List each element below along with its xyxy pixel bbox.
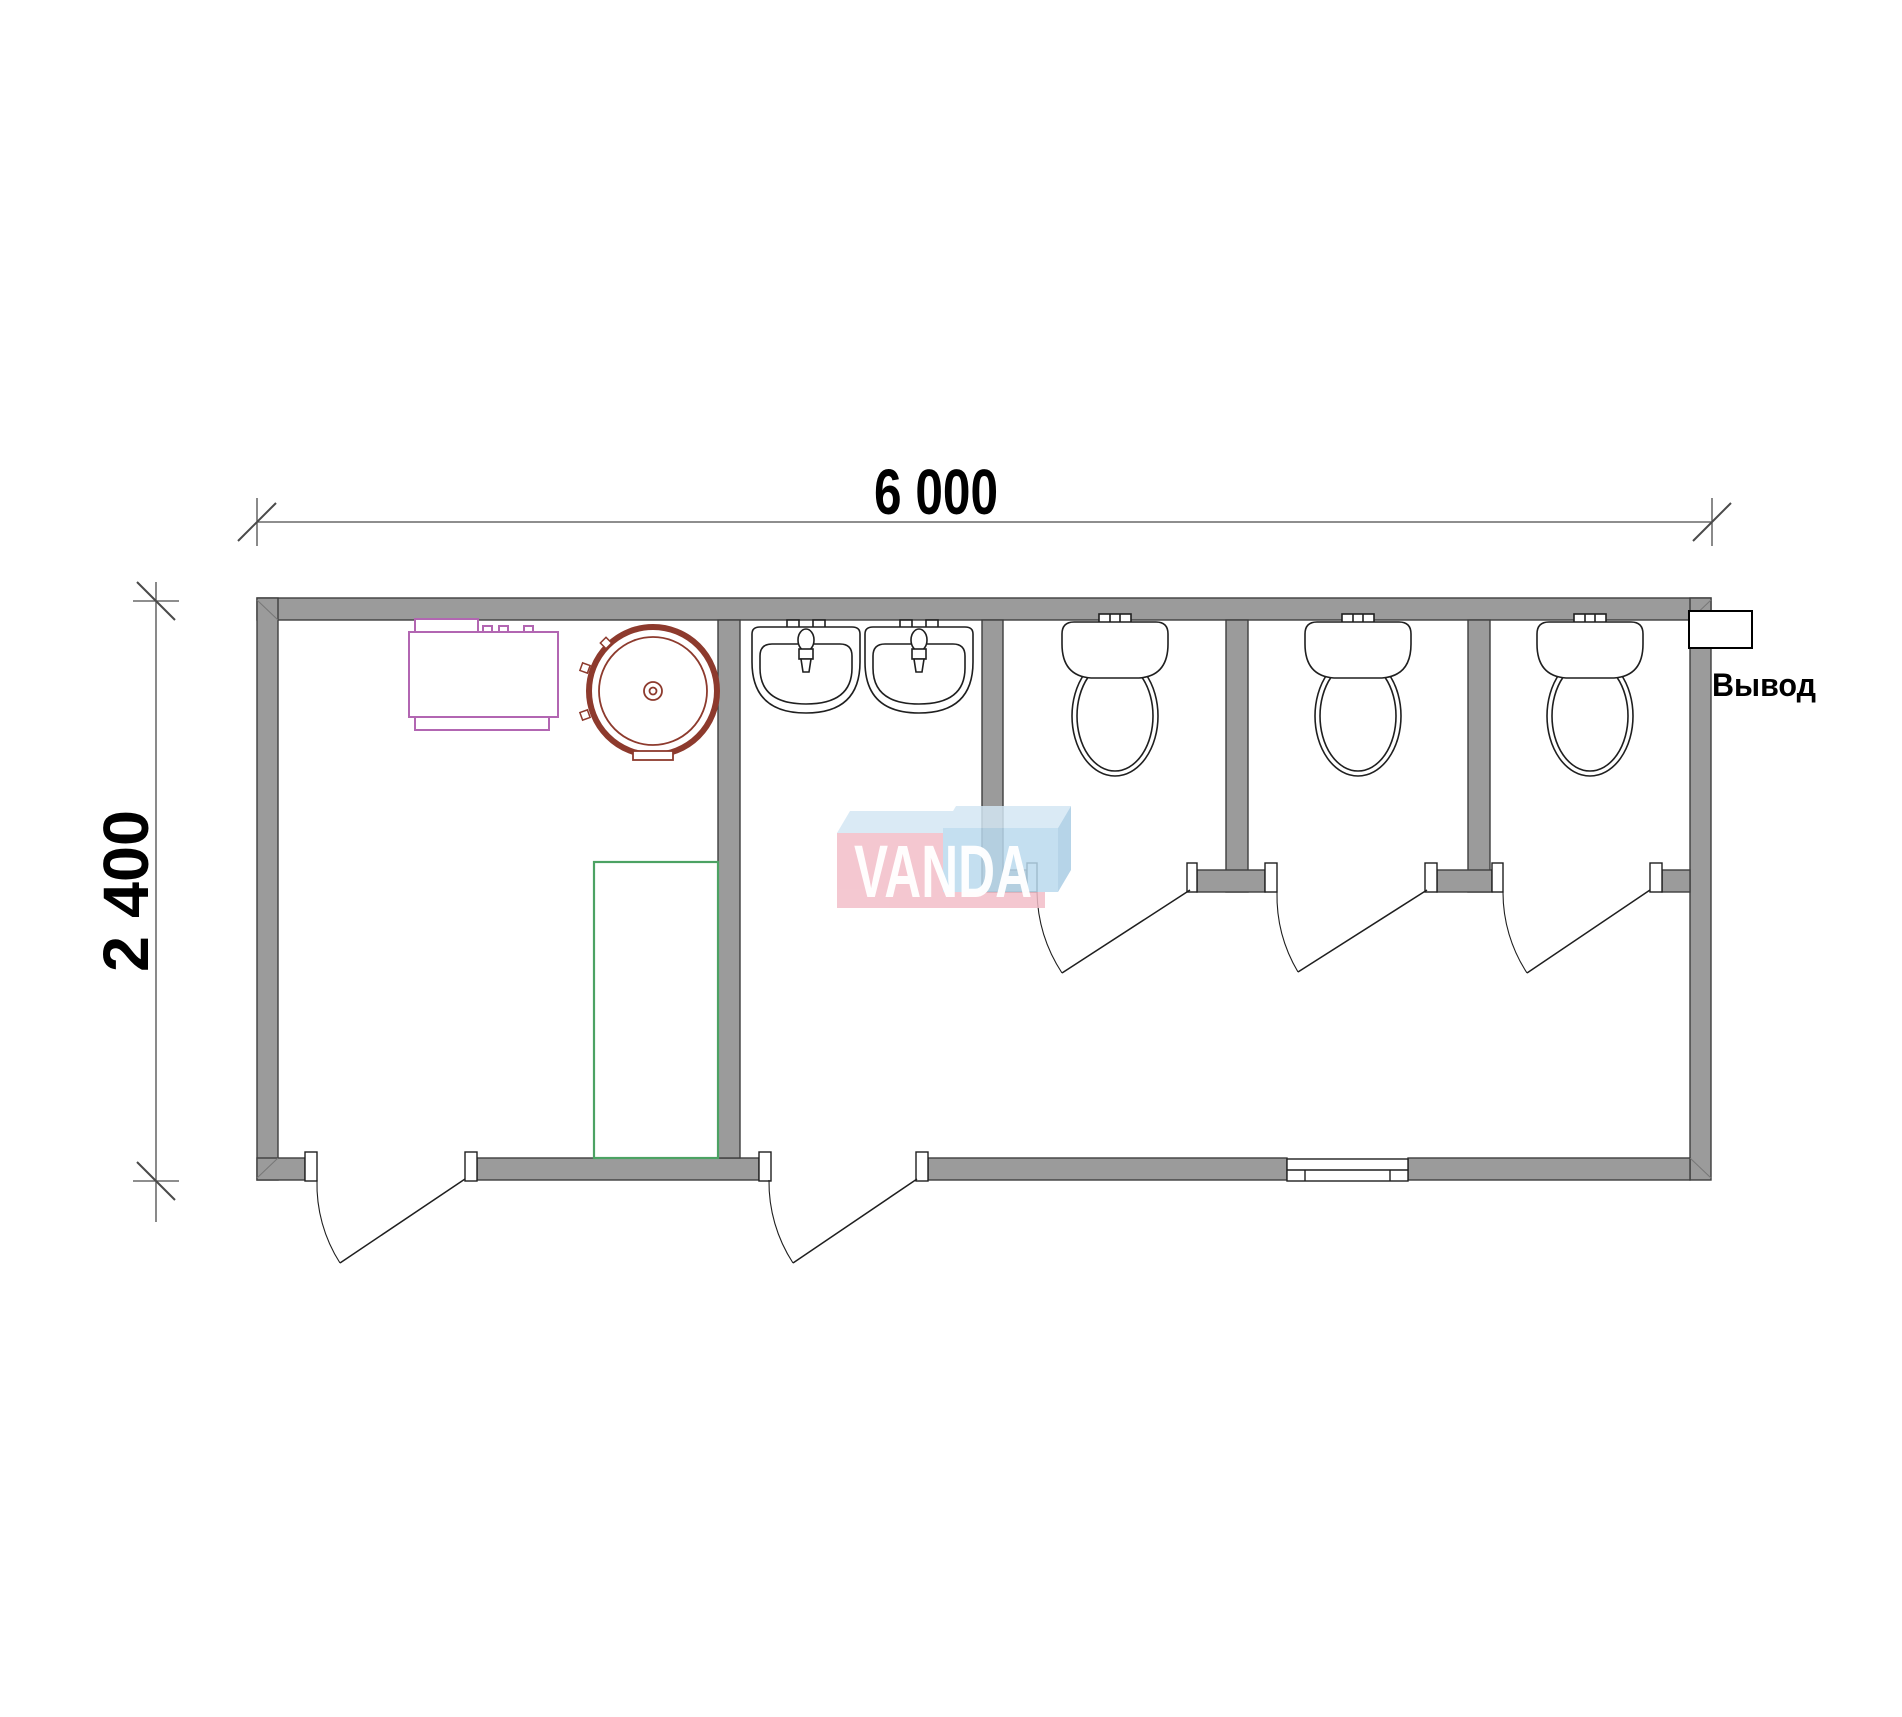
heater-bracket	[633, 751, 673, 760]
cabinet-bottom-tab	[415, 717, 549, 730]
fixtures	[752, 614, 1643, 776]
heater-lug	[580, 663, 590, 673]
door-leaf	[1298, 890, 1427, 972]
door-stall-2	[1277, 890, 1427, 972]
door-jamb	[759, 1152, 771, 1181]
sink-1	[752, 620, 860, 713]
partition-stall2-stall3	[1468, 620, 1490, 892]
door-arc	[769, 1180, 793, 1263]
door-stall-3	[1503, 890, 1650, 973]
wall-left	[257, 598, 278, 1180]
door-jamb	[916, 1152, 928, 1181]
storage-cabinet	[409, 619, 558, 730]
cabinet-body	[409, 632, 558, 717]
partition-stall1-stall2	[1226, 620, 1248, 892]
dim-height-label: 2 400	[90, 810, 162, 972]
door-jamb	[305, 1152, 317, 1181]
door-arc	[1503, 892, 1527, 973]
door-leaf	[1062, 890, 1190, 973]
doors	[317, 890, 1650, 1263]
water-heater	[580, 627, 717, 760]
door-arc	[1277, 892, 1298, 972]
outlet-box	[1689, 611, 1752, 648]
wall-right	[1690, 598, 1711, 1180]
door-stall-1	[1037, 890, 1190, 973]
stall-front-wall-segment	[1437, 870, 1492, 892]
door-jamb	[1425, 863, 1437, 892]
door-jamb	[1492, 863, 1503, 892]
door-utility-room	[317, 1179, 465, 1263]
toilet-1	[1062, 614, 1168, 776]
floor-plan-drawing: 6 000 2 400	[0, 0, 1902, 1717]
floor-plan-page: 6 000 2 400	[0, 0, 1902, 1717]
shower-tray	[594, 862, 718, 1158]
wall-bottom-segment	[257, 1158, 305, 1180]
wall-bottom-segment	[477, 1158, 759, 1180]
cabinet-top-tab	[415, 619, 478, 632]
door-washroom	[769, 1179, 917, 1263]
door-jamb	[1265, 863, 1277, 892]
dim-width-label: 6 000	[874, 456, 998, 528]
stall-front-wall-segment	[1662, 870, 1690, 892]
door-jamb	[465, 1152, 477, 1181]
watermark-label: VANDA	[854, 830, 1032, 913]
toilet-3	[1537, 614, 1643, 776]
wall-bottom-segment	[1408, 1158, 1690, 1180]
window	[1287, 1159, 1408, 1181]
door-leaf	[793, 1179, 917, 1263]
door-leaf	[1527, 890, 1650, 973]
stall-front-wall-segment	[1197, 870, 1265, 892]
door-arc	[317, 1180, 340, 1263]
toilet-2	[1305, 614, 1411, 776]
door-jamb	[1650, 863, 1662, 892]
heater-lug	[580, 710, 590, 720]
door-leaf	[340, 1179, 465, 1263]
door-jamb	[1187, 863, 1197, 892]
watermark-blue-top-face	[943, 806, 1071, 828]
wall-bottom-segment	[928, 1158, 1287, 1180]
wall-top	[257, 598, 1711, 620]
sink-2	[865, 620, 973, 713]
outlet-label: Вывод	[1712, 667, 1816, 703]
partition-utility-washroom	[718, 620, 740, 1158]
